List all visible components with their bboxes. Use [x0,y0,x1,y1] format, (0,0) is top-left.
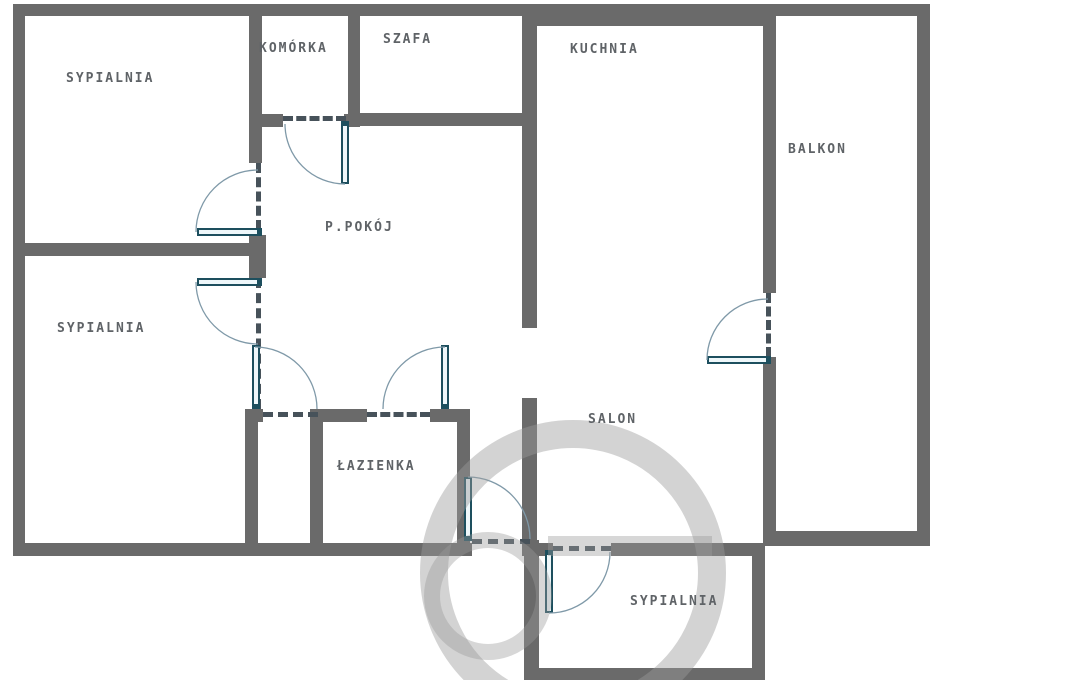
room-label-sypialnia-2: SYPIALNIA [57,321,145,336]
room-label-balkon: BALKON [788,142,847,157]
door-balcony-arc [707,299,768,360]
wall-outer-left [13,4,25,556]
wall-kitchen-left-upper [522,4,537,328]
wall-outer-top-kitchen [522,4,776,26]
floorplan-canvas: SYPIALNIA KOMÓRKA SZAFA KUCHNIA BALKON P… [0,0,1090,680]
wall-komorka-left [249,4,262,163]
wall-syp2-corridor [245,409,258,556]
door-syp2-arc [196,282,258,344]
room-label-sypialnia-1: SYPIALNIA [66,71,154,86]
opening-komorka-door [283,116,346,121]
wall-outer-top-left [13,4,537,16]
wall-wc-right [310,409,323,556]
wall-lazienka-top-2 [318,409,367,422]
wall-balcony-left-lower [763,357,776,546]
wall-balcony-left-upper [763,4,776,293]
wall-corridor-block [249,235,266,278]
room-label-kuchnia: KUCHNIA [570,42,639,57]
watermark-bar [548,536,712,556]
wall-komorka-bottom-left [249,114,283,127]
room-label-p-pokoj: P.POKÓJ [325,220,394,235]
wall-outer-bottom [13,543,472,556]
door-komorka-arc [285,124,345,184]
opening-wc-door [263,412,318,417]
door-wc-arc [255,347,317,409]
watermark-ring-small [424,532,552,660]
wall-szafa-bottom [348,113,537,126]
door-syp2-leaf [197,278,262,286]
wall-lazienka-top-1 [245,409,263,422]
door-syp1-arc [196,170,258,232]
opening-syp1-door [256,163,261,230]
wall-balcony-right [917,4,930,546]
wall-lazienka-top-3 [430,409,470,422]
door-wc-leaf [252,345,260,409]
door-lazienka-arc [383,347,445,409]
wall-syp1-bottom [13,243,260,256]
opening-balcony-door [766,293,771,357]
door-komorka-leaf [341,121,349,184]
room-label-szafa: SZAFA [383,32,432,47]
door-lazienka-leaf [441,345,449,409]
wall-syp3-right [752,543,765,680]
door-syp1-leaf [197,228,262,236]
wall-balcony-bottom [763,531,930,546]
room-label-lazienka: ŁAZIENKA [337,459,416,474]
wall-outer-top-balcony [776,4,930,16]
room-label-salon: SALON [588,412,637,427]
opening-lazienka-door [367,412,430,417]
door-balcony-leaf [707,356,771,364]
wall-komorka-right [348,4,360,127]
room-label-sypialnia-3: SYPIALNIA [630,594,718,609]
room-label-komorka: KOMÓRKA [259,41,328,56]
